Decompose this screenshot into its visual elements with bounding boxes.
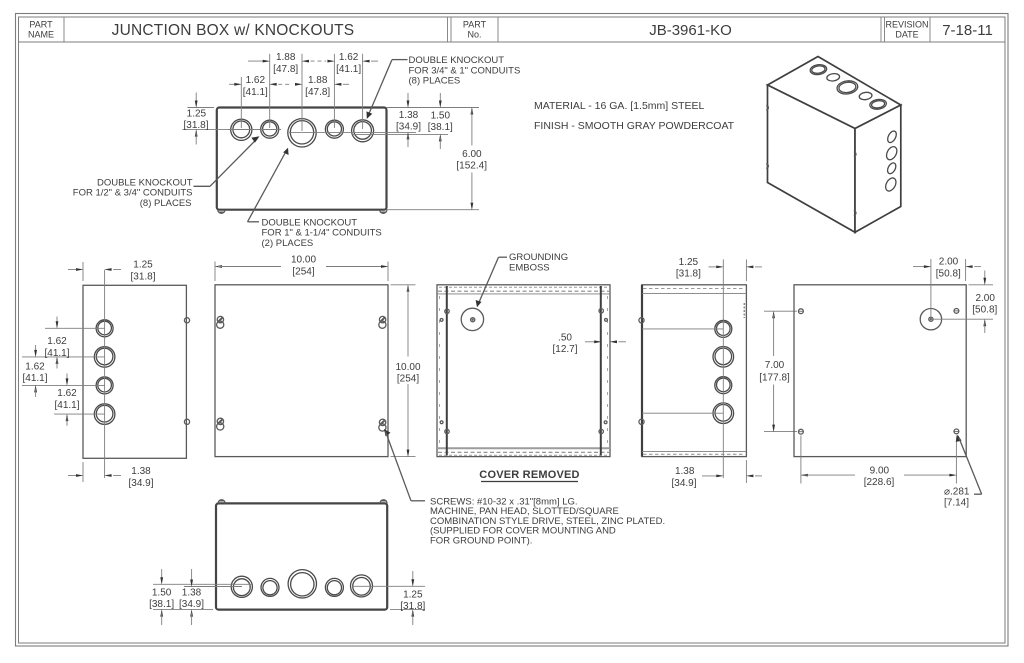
svg-text:[34.9]: [34.9] [396, 121, 421, 132]
svg-text:PART: PART [463, 20, 487, 30]
svg-text:FOR GROUND POINT).: FOR GROUND POINT). [430, 535, 532, 546]
svg-text:1.62: 1.62 [57, 388, 77, 399]
svg-text:[31.8]: [31.8] [676, 269, 701, 280]
svg-text:[7.14]: [7.14] [944, 498, 969, 509]
svg-text:1.88: 1.88 [308, 75, 328, 86]
svg-text:1.50: 1.50 [152, 587, 172, 598]
svg-text:[47.8]: [47.8] [273, 64, 298, 75]
svg-text:1.25: 1.25 [679, 257, 699, 268]
svg-text:GROUNDING: GROUNDING [509, 252, 568, 263]
svg-text:1.62: 1.62 [339, 52, 359, 63]
svg-text:(8) PLACES: (8) PLACES [409, 76, 461, 87]
svg-text:(2) PLACES: (2) PLACES [262, 238, 314, 249]
svg-text:COVER REMOVED: COVER REMOVED [479, 469, 579, 481]
svg-text:DATE: DATE [895, 30, 918, 40]
svg-text:1.38: 1.38 [131, 466, 151, 477]
svg-text:JB-3961-KO: JB-3961-KO [649, 22, 732, 39]
svg-text:[41.1]: [41.1] [22, 373, 47, 384]
svg-text:[34.9]: [34.9] [179, 599, 204, 610]
svg-text:1.62: 1.62 [47, 336, 67, 347]
svg-text:[50.8]: [50.8] [936, 268, 961, 279]
svg-text:1.62: 1.62 [25, 361, 45, 372]
svg-text:PART: PART [29, 20, 53, 30]
svg-text:9.00: 9.00 [870, 465, 890, 476]
svg-text:[254]: [254] [397, 374, 419, 385]
svg-text:[41.1]: [41.1] [336, 64, 361, 75]
svg-text:[41.1]: [41.1] [54, 400, 79, 411]
svg-text:[38.1]: [38.1] [149, 599, 174, 610]
svg-text:[228.6]: [228.6] [864, 477, 895, 488]
svg-text:7.00: 7.00 [765, 360, 785, 371]
svg-text:10.00: 10.00 [291, 255, 316, 266]
svg-text:10.00: 10.00 [395, 362, 420, 373]
svg-text:2.00: 2.00 [975, 293, 995, 304]
svg-text:[41.1]: [41.1] [243, 87, 268, 98]
svg-text:6.00: 6.00 [462, 149, 482, 160]
svg-text:JUNCTION BOX w/ KNOCKOUTS: JUNCTION BOX w/ KNOCKOUTS [112, 22, 355, 39]
svg-text:[12.7]: [12.7] [552, 344, 577, 355]
svg-text:.50: .50 [558, 332, 572, 343]
svg-text:[34.9]: [34.9] [671, 478, 696, 489]
svg-text:1.38: 1.38 [675, 466, 695, 477]
svg-text:[47.8]: [47.8] [305, 87, 330, 98]
svg-text:1.50: 1.50 [431, 110, 451, 121]
svg-text:[50.8]: [50.8] [972, 305, 997, 316]
svg-text:FINISH - SMOOTH GRAY POWDERCOA: FINISH - SMOOTH GRAY POWDERCOAT [534, 120, 735, 132]
svg-text:1.38: 1.38 [399, 110, 419, 121]
svg-text:1.38: 1.38 [182, 587, 202, 598]
svg-text:⌀.281: ⌀.281 [944, 487, 970, 498]
svg-text:1.62: 1.62 [246, 75, 266, 86]
svg-text:[31.8]: [31.8] [130, 271, 155, 282]
svg-text:2.00: 2.00 [939, 257, 959, 268]
svg-text:[177.8]: [177.8] [759, 372, 790, 383]
svg-text:MATERIAL - 16 GA. [1.5mm] STEE: MATERIAL - 16 GA. [1.5mm] STEEL [534, 100, 705, 112]
svg-text:1.88: 1.88 [276, 52, 296, 63]
svg-text:1.25: 1.25 [187, 108, 207, 119]
svg-text:7-18-11: 7-18-11 [942, 22, 993, 39]
svg-text:NAME: NAME [28, 30, 54, 40]
svg-text:1.25: 1.25 [403, 589, 423, 600]
svg-text:[34.9]: [34.9] [128, 478, 153, 489]
svg-text:REVISION: REVISION [885, 20, 928, 30]
svg-text:[31.8]: [31.8] [183, 120, 208, 131]
svg-text:No.: No. [467, 30, 481, 40]
svg-text:(8) PLACES: (8) PLACES [140, 198, 192, 209]
svg-text:[38.1]: [38.1] [428, 122, 453, 133]
svg-text:1.25: 1.25 [133, 260, 153, 271]
svg-text:[254]: [254] [292, 266, 314, 277]
svg-text:[152.4]: [152.4] [456, 161, 487, 172]
svg-text:EMBOSS: EMBOSS [509, 263, 550, 274]
